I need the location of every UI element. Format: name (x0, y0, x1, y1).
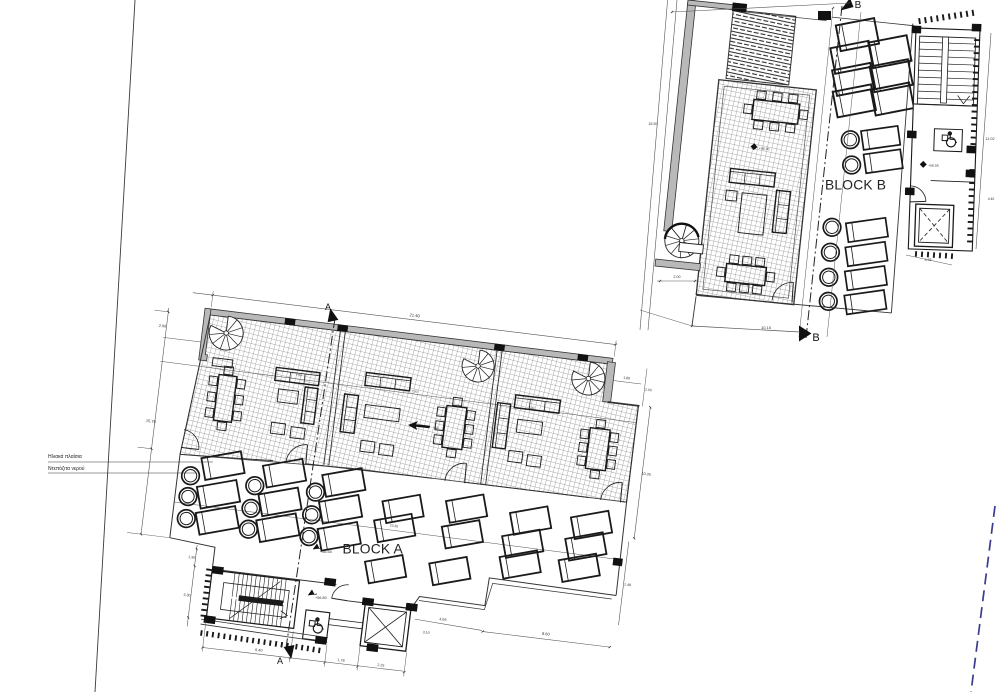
svg-text:7.90: 7.90 (411, 389, 418, 394)
svg-text:1.48: 1.48 (624, 582, 631, 587)
svg-text:A: A (277, 656, 283, 666)
svg-text:BLOCK B: BLOCK B (825, 178, 886, 193)
svg-text:2.00: 2.00 (645, 388, 652, 393)
svg-text:1.35: 1.35 (188, 555, 195, 560)
svg-text:1.80: 1.80 (623, 376, 630, 381)
svg-text:1.78: 1.78 (337, 658, 344, 663)
svg-text:2.25: 2.25 (377, 663, 384, 668)
svg-text:A: A (325, 302, 331, 312)
svg-text:10.15: 10.15 (761, 325, 772, 330)
svg-text:15.50: 15.50 (648, 122, 658, 126)
svg-text:Ηλιακά πλαίσια: Ηλιακά πλαίσια (48, 453, 82, 460)
svg-text:B: B (812, 332, 819, 344)
svg-text:+56.55: +56.55 (320, 550, 332, 554)
svg-text:4.40: 4.40 (988, 197, 995, 201)
svg-text:3.10: 3.10 (422, 630, 429, 635)
svg-text:3.30: 3.30 (183, 593, 190, 598)
svg-text:+56.80: +56.80 (315, 596, 327, 600)
svg-text:B: B (855, 0, 862, 11)
svg-text:2.00: 2.00 (674, 275, 681, 279)
svg-text:11.02: 11.02 (985, 137, 994, 141)
svg-text:+56.55: +56.55 (928, 164, 939, 168)
svg-text:8.60: 8.60 (542, 631, 551, 637)
svg-text:Ντεπόζιτα νερού: Ντεπόζιτα νερού (48, 465, 85, 472)
svg-text:BLOCK A: BLOCK A (343, 542, 404, 557)
